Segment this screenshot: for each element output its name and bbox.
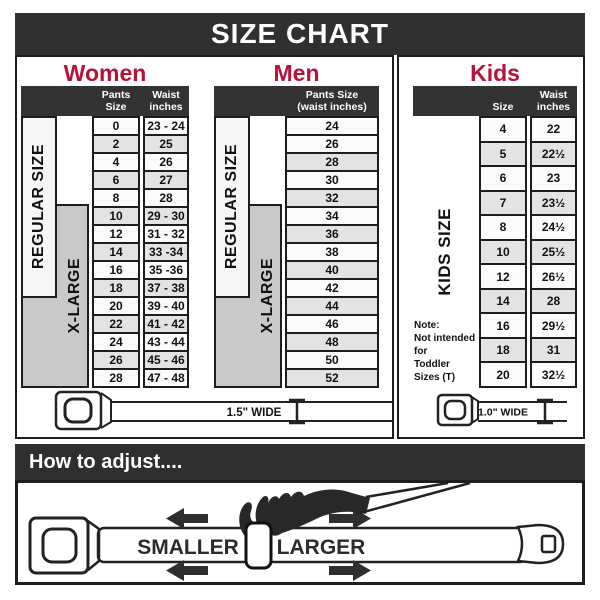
kids-size-category-column: KIDS SIZE Note: Not intended for Toddler… bbox=[413, 116, 476, 388]
kids-toddler-note: Note: Not intended for Toddler Sizes (T) bbox=[414, 319, 476, 384]
women-size-table: Pants Size Waist inches X-LARGE REGULAR … bbox=[21, 86, 189, 388]
kids-col-waist: Waist inches bbox=[530, 89, 577, 113]
title-banner: SIZE CHART bbox=[15, 13, 585, 55]
table-cell: 36 bbox=[285, 224, 379, 244]
table-cell: 31 - 32 bbox=[143, 224, 189, 244]
adult-belt-illustration: 1.5" WIDE bbox=[18, 384, 392, 436]
table-cell: 25 bbox=[143, 134, 189, 154]
men-table-body: X-LARGE REGULAR SIZE 2426283032343638404… bbox=[214, 116, 379, 388]
table-cell: 16 bbox=[92, 260, 140, 280]
table-cell: 28 bbox=[530, 288, 577, 315]
men-regular-band: REGULAR SIZE bbox=[214, 116, 250, 298]
table-cell: 41 - 42 bbox=[143, 314, 189, 334]
table-cell: 2 bbox=[92, 134, 140, 154]
table-cell: 12 bbox=[479, 263, 527, 290]
table-cell: 24½ bbox=[530, 214, 577, 241]
women-pants-size-column: 0246810121416182022242628 bbox=[92, 116, 140, 388]
how-to-adjust-banner: How to adjust.... bbox=[15, 444, 585, 480]
table-cell: 22 bbox=[92, 314, 140, 334]
table-cell: 18 bbox=[92, 278, 140, 298]
table-cell: 6 bbox=[479, 165, 527, 192]
how-to-adjust-title: How to adjust.... bbox=[29, 451, 182, 474]
table-cell: 6 bbox=[92, 170, 140, 190]
table-cell: 38 bbox=[285, 242, 379, 262]
men-regular-label: REGULAR SIZE bbox=[223, 144, 241, 269]
table-cell: 8 bbox=[479, 214, 527, 241]
table-cell: 14 bbox=[92, 242, 140, 262]
arm-line bbox=[366, 483, 448, 497]
women-size-category-column: X-LARGE REGULAR SIZE bbox=[21, 116, 89, 388]
table-cell: 35 -36 bbox=[143, 260, 189, 280]
page-title: SIZE CHART bbox=[211, 18, 389, 50]
table-cell: 16 bbox=[479, 312, 527, 339]
table-cell: 43 - 44 bbox=[143, 332, 189, 352]
table-cell: 26 bbox=[285, 134, 379, 154]
table-cell: 28 bbox=[143, 188, 189, 208]
men-size-table: Pants Size (waist inches) X-LARGE REGULA… bbox=[214, 86, 379, 388]
belt-buckle-icon bbox=[56, 392, 111, 429]
men-table-header: Pants Size (waist inches) bbox=[214, 86, 379, 116]
women-xlarge-label: X-LARGE bbox=[66, 258, 84, 334]
table-cell: 25½ bbox=[530, 239, 577, 266]
table-cell: 29 - 30 bbox=[143, 206, 189, 226]
smaller-label: SMALLER bbox=[137, 536, 239, 559]
size-chart-infographic: SIZE CHART Women Men Pants Size Waist in… bbox=[0, 0, 600, 600]
table-cell: 22 bbox=[530, 116, 577, 143]
width-measure-icon bbox=[537, 400, 553, 423]
table-cell: 33 -34 bbox=[143, 242, 189, 262]
kids-size-column: 45678101214161820 bbox=[479, 116, 527, 388]
kids-belt-illustration: 1.0" WIDE bbox=[399, 384, 583, 436]
table-cell: 27 bbox=[143, 170, 189, 190]
table-cell: 28 bbox=[285, 152, 379, 172]
table-cell: 26 bbox=[92, 350, 140, 370]
table-cell: 10 bbox=[92, 206, 140, 226]
belt-slider bbox=[246, 523, 271, 568]
table-cell: 23 bbox=[530, 165, 577, 192]
table-cell: 26½ bbox=[530, 263, 577, 290]
belt-buckle-icon bbox=[438, 395, 478, 425]
men-heading: Men bbox=[214, 60, 379, 87]
table-cell: 7 bbox=[479, 190, 527, 217]
belt-buckle-icon bbox=[30, 518, 99, 573]
table-cell: 24 bbox=[285, 116, 379, 136]
adult-panel: Women Men Pants Size Waist inches X-LARG… bbox=[15, 55, 394, 439]
table-cell: 22½ bbox=[530, 141, 577, 168]
table-cell: 23½ bbox=[530, 190, 577, 217]
adult-belt-width-label: 1.5" WIDE bbox=[227, 407, 282, 419]
table-cell: 26 bbox=[143, 152, 189, 172]
kids-table-body: KIDS SIZE Note: Not intended for Toddler… bbox=[413, 116, 577, 388]
women-col-waist: Waist inches bbox=[143, 89, 189, 113]
table-cell: 14 bbox=[479, 288, 527, 315]
table-cell: 5 bbox=[479, 141, 527, 168]
table-cell: 31 bbox=[530, 337, 577, 364]
kids-heading: Kids bbox=[413, 60, 577, 87]
women-regular-label: REGULAR SIZE bbox=[30, 144, 48, 269]
table-cell: 18 bbox=[479, 337, 527, 364]
larger-label: LARGER bbox=[277, 536, 366, 559]
men-pants-size-column: 242628303234363840424446485052 bbox=[285, 116, 379, 388]
table-cell: 10 bbox=[479, 239, 527, 266]
kids-panel: Kids Size Waist inches KIDS SIZE Note: N… bbox=[397, 55, 585, 439]
table-cell: 24 bbox=[92, 332, 140, 352]
adjust-belt-illustration: SMALLER LARGER bbox=[18, 483, 582, 582]
women-heading: Women bbox=[21, 60, 189, 87]
kids-size-table: Size Waist inches KIDS SIZE Note: Not in… bbox=[413, 86, 577, 388]
kids-table-header: Size Waist inches bbox=[413, 86, 577, 116]
table-cell: 37 - 38 bbox=[143, 278, 189, 298]
table-cell: 32 bbox=[285, 188, 379, 208]
width-measure-icon bbox=[289, 400, 305, 423]
kids-waist-column: 2222½2323½24½25½26½2829½3132½ bbox=[530, 116, 577, 388]
table-cell: 39 - 40 bbox=[143, 296, 189, 316]
table-cell: 50 bbox=[285, 350, 379, 370]
women-table-body: X-LARGE REGULAR SIZE 0246810121416182022… bbox=[21, 116, 189, 388]
men-size-category-column: X-LARGE REGULAR SIZE bbox=[214, 116, 282, 388]
table-cell: 40 bbox=[285, 260, 379, 280]
table-cell: 46 bbox=[285, 314, 379, 334]
women-table-header: Pants Size Waist inches bbox=[21, 86, 189, 116]
table-cell: 48 bbox=[285, 332, 379, 352]
table-cell: 20 bbox=[92, 296, 140, 316]
women-waist-column: 23 - 242526272829 - 3031 - 3233 -3435 -3… bbox=[143, 116, 189, 388]
men-col-pants-size: Pants Size (waist inches) bbox=[285, 89, 379, 113]
table-cell: 44 bbox=[285, 296, 379, 316]
table-cell: 23 - 24 bbox=[143, 116, 189, 136]
women-col-pants-size: Pants Size bbox=[92, 89, 140, 113]
table-cell: 30 bbox=[285, 170, 379, 190]
kids-size-label: KIDS SIZE bbox=[435, 208, 455, 296]
table-cell: 4 bbox=[479, 116, 527, 143]
kids-belt-width-label: 1.0" WIDE bbox=[478, 407, 528, 419]
belt-tongue-icon bbox=[518, 525, 563, 563]
table-cell: 8 bbox=[92, 188, 140, 208]
men-xlarge-label: X-LARGE bbox=[259, 258, 277, 334]
kids-col-size: Size bbox=[479, 101, 527, 113]
adjust-illustration-box: SMALLER LARGER bbox=[15, 480, 585, 585]
table-cell: 29½ bbox=[530, 312, 577, 339]
table-cell: 0 bbox=[92, 116, 140, 136]
table-cell: 34 bbox=[285, 206, 379, 226]
women-regular-band: REGULAR SIZE bbox=[21, 116, 57, 298]
table-cell: 42 bbox=[285, 278, 379, 298]
arrow-left-icon bbox=[166, 508, 208, 529]
table-cell: 4 bbox=[92, 152, 140, 172]
table-cell: 45 - 46 bbox=[143, 350, 189, 370]
table-cell: 12 bbox=[92, 224, 140, 244]
